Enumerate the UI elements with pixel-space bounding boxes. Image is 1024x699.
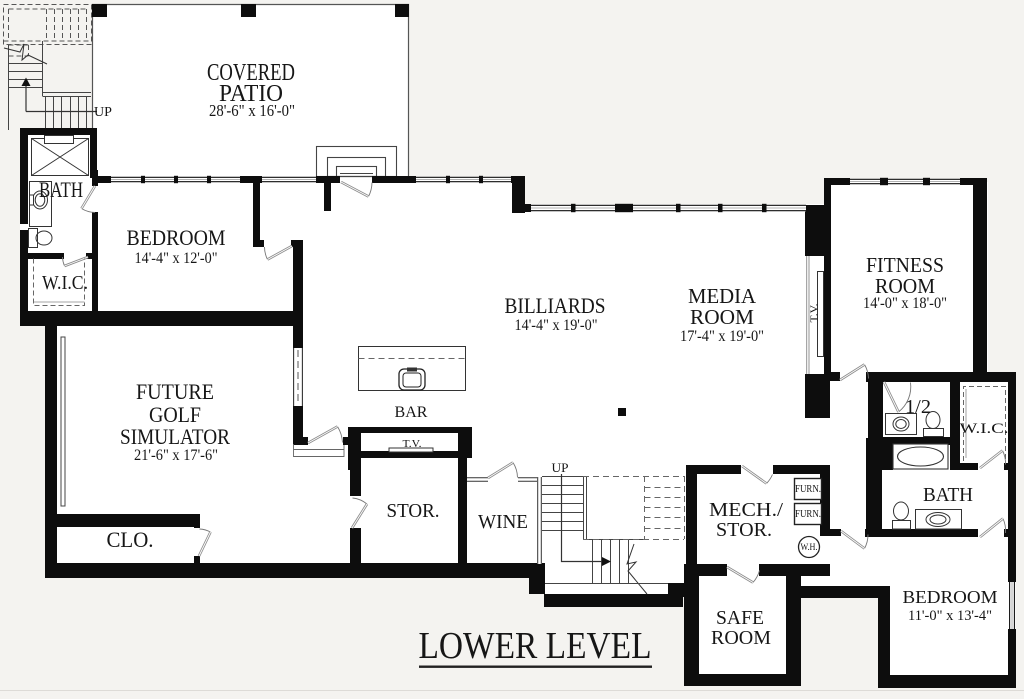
- svg-text:CLO.: CLO.: [107, 527, 154, 552]
- svg-text:T.V.: T.V.: [809, 303, 821, 322]
- svg-text:FURN.: FURN.: [795, 484, 821, 495]
- svg-text:1/2: 1/2: [905, 396, 931, 418]
- svg-text:W.H.: W.H.: [801, 543, 818, 553]
- svg-text:UP: UP: [94, 105, 112, 120]
- svg-text:ROOM: ROOM: [711, 627, 771, 649]
- svg-text:BATH: BATH: [39, 177, 83, 202]
- svg-text:BILLIARDS: BILLIARDS: [505, 293, 606, 318]
- svg-text:14'-4" x 19'-0": 14'-4" x 19'-0": [515, 317, 598, 334]
- svg-text:BAR: BAR: [395, 404, 428, 421]
- svg-text:14'-4" x 12'-0": 14'-4" x 12'-0": [135, 250, 218, 267]
- svg-text:W.I.C.: W.I.C.: [42, 272, 88, 294]
- svg-text:STOR.: STOR.: [716, 519, 772, 541]
- svg-text:14'-0" x 18'-0": 14'-0" x 18'-0": [863, 295, 947, 312]
- svg-text:W.I.C.: W.I.C.: [960, 421, 1009, 437]
- svg-text:T.V.: T.V.: [403, 438, 422, 450]
- svg-text:FURN.: FURN.: [795, 509, 821, 520]
- svg-text:MECH./: MECH./: [709, 499, 783, 521]
- svg-text:SAFE: SAFE: [716, 607, 764, 629]
- svg-text:FUTURE: FUTURE: [136, 379, 214, 404]
- svg-text:17'-4" x 19'-0": 17'-4" x 19'-0": [680, 328, 764, 345]
- svg-text:SIMULATOR: SIMULATOR: [120, 424, 230, 449]
- svg-text:BATH: BATH: [923, 484, 973, 506]
- svg-text:STOR.: STOR.: [387, 500, 440, 522]
- svg-text:28'-6" x 16'-0": 28'-6" x 16'-0": [209, 101, 295, 120]
- svg-text:WINE: WINE: [478, 511, 528, 533]
- svg-text:BEDROOM: BEDROOM: [127, 225, 226, 250]
- svg-text:21'-6" x 17'-6": 21'-6" x 17'-6": [134, 447, 218, 464]
- svg-text:LOWER LEVEL: LOWER LEVEL: [419, 625, 652, 667]
- svg-text:BEDROOM: BEDROOM: [903, 587, 998, 607]
- svg-text:11'-0" x 13'-4": 11'-0" x 13'-4": [908, 608, 992, 624]
- svg-text:UP: UP: [552, 460, 569, 475]
- svg-text:ROOM: ROOM: [690, 305, 754, 329]
